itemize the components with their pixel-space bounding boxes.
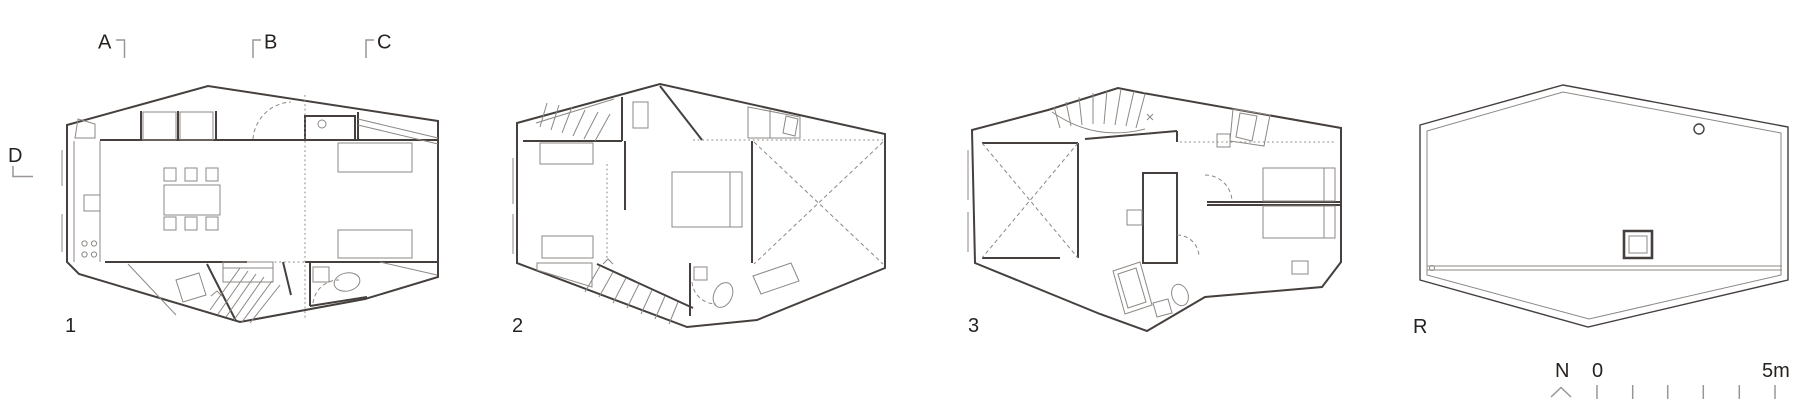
north-arrow-icon	[1551, 388, 1571, 398]
compass: N	[1551, 360, 1571, 397]
section-label-c: C	[377, 32, 391, 54]
roof-edge-inner	[1427, 92, 1781, 319]
bathroom-door-arc	[313, 280, 339, 303]
wash-basin	[318, 120, 326, 128]
scale-start-label: 0	[1592, 360, 1603, 382]
bathroom-sink	[1153, 299, 1172, 317]
bathtub	[1113, 262, 1152, 314]
bench	[753, 263, 799, 294]
door-swing-arc	[253, 102, 291, 139]
burner-icon	[91, 252, 96, 257]
beds	[338, 143, 412, 258]
floor-label-2: 2	[512, 315, 523, 337]
toilet	[332, 270, 361, 293]
section-label-a: A	[98, 32, 112, 54]
slope-closet-edge	[380, 262, 437, 275]
floor-label-roof: R	[1413, 316, 1427, 338]
floor-plan-2: 2	[512, 84, 885, 337]
section-markers: A B C D	[8, 32, 391, 177]
toilet	[1169, 282, 1192, 308]
closet	[633, 102, 648, 128]
wardrobe	[748, 107, 800, 138]
burner-icon	[82, 252, 87, 257]
beds	[540, 143, 593, 258]
bathroom-sink	[313, 267, 329, 282]
scale-ticks	[1597, 385, 1775, 399]
stove-burners	[82, 241, 97, 257]
bathroom-door-arc	[692, 282, 716, 304]
skylight-inner	[1629, 236, 1647, 253]
door-swing-arcs	[1177, 175, 1232, 257]
burner-icon	[82, 241, 87, 246]
scale-end-label: 5m	[1762, 360, 1790, 382]
section-tick-a-icon	[116, 40, 125, 58]
cabinet	[1217, 134, 1230, 147]
scale-bar: 0 5m	[1592, 360, 1790, 399]
building-outline	[972, 88, 1341, 331]
roof-gutter-line	[1427, 266, 1782, 270]
dining-chairs	[164, 168, 218, 230]
section-tick-c-icon	[366, 40, 374, 58]
floor-label-3: 3	[968, 315, 979, 337]
interior-walls	[523, 86, 752, 316]
dining-table	[164, 185, 220, 215]
storage	[537, 263, 592, 287]
section-label-d: D	[8, 145, 22, 167]
bathroom-sink	[694, 267, 707, 280]
stair-treads	[585, 259, 678, 324]
double-bed	[672, 172, 742, 227]
roof-outline	[1420, 85, 1788, 327]
stair-treads	[210, 268, 280, 323]
vent-pipe	[1694, 124, 1704, 134]
cabinet	[223, 262, 273, 282]
winder-stair-treads	[1052, 89, 1153, 133]
burner-icon	[91, 241, 96, 246]
upper-stair-treads	[536, 99, 614, 141]
side-table	[1127, 210, 1142, 225]
section-tick-d-icon	[13, 166, 33, 177]
void-x	[982, 143, 1078, 258]
step	[1292, 261, 1308, 274]
floor-plan-3: 3	[968, 88, 1341, 337]
section-tick-b-icon	[253, 40, 261, 58]
north-label: N	[1555, 360, 1569, 382]
interior-walls	[982, 131, 1341, 263]
section-label-b: B	[264, 32, 277, 54]
skylight	[1624, 231, 1652, 258]
toilet	[709, 279, 736, 310]
drawing-sheet: A B C D 1	[0, 0, 1820, 420]
building-outline	[67, 86, 438, 322]
entry-closet	[75, 119, 95, 138]
void-x	[754, 142, 883, 264]
roof-plan: R	[1413, 85, 1788, 338]
floor-plans-drawing: A B C D 1	[0, 0, 1820, 420]
floor-label-1: 1	[65, 315, 76, 337]
building-outline	[517, 84, 885, 327]
floor-plan-1: 1	[62, 86, 438, 337]
